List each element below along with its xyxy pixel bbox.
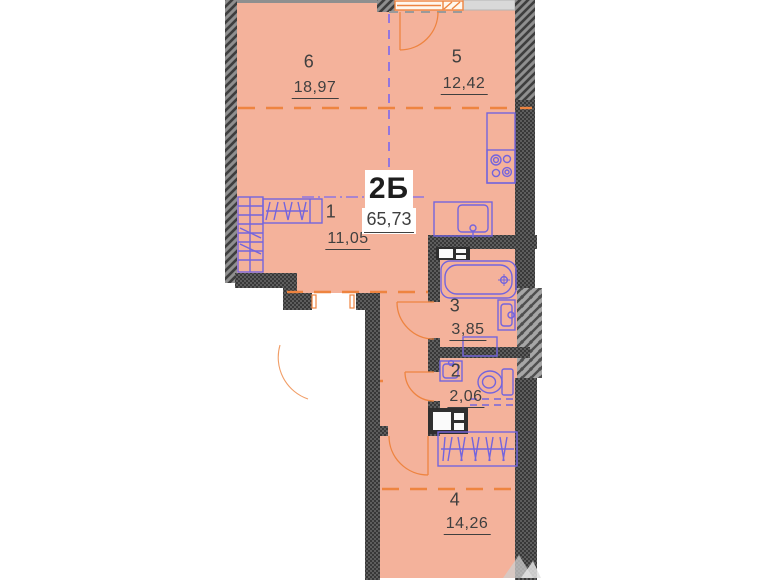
wall-stub-top xyxy=(377,0,395,12)
room-6-number: 6 xyxy=(304,52,315,73)
wall-corridor-seg2 xyxy=(428,338,440,372)
room-1-number: 1 xyxy=(326,202,337,223)
balcony-door-unit xyxy=(395,1,463,10)
room-2-area: 2,06 xyxy=(447,386,484,406)
room-6-area: 18,97 xyxy=(292,77,339,97)
wall-block-right-hatch xyxy=(517,288,542,378)
room-4-area: 14,26 xyxy=(444,513,491,533)
floorplan-canvas xyxy=(0,0,780,580)
room-5-area: 12,42 xyxy=(441,73,488,93)
room-2-number: 2 xyxy=(451,361,462,382)
apartment-total-area: 65,73 xyxy=(362,208,416,234)
window-slab-top xyxy=(463,0,515,10)
room-3-number: 3 xyxy=(450,296,461,317)
room-5-number: 5 xyxy=(452,47,463,68)
wall-step-horizontal xyxy=(235,273,297,288)
wall-right-hatch xyxy=(515,0,535,102)
room-3-area: 3,85 xyxy=(449,319,486,339)
door-arc-neighbor xyxy=(278,345,308,399)
wall-left-lower xyxy=(365,310,380,580)
ventilation-shaft-icon xyxy=(436,247,470,260)
wall-left-upper xyxy=(225,0,237,283)
floorplan: 6 18,97 5 12,42 1 11,05 3 3,85 2 2,06 4 … xyxy=(0,0,780,580)
window-top-room6 xyxy=(237,0,377,3)
apartment-type-label: 2Б xyxy=(365,170,413,208)
wall-door4-stub xyxy=(380,426,388,436)
room-4-number: 4 xyxy=(450,490,461,511)
entrance-door-jambs xyxy=(312,295,354,308)
wall-right-upper xyxy=(515,100,535,290)
wall-step-corner xyxy=(297,293,312,310)
wall-kitchen-bath xyxy=(428,235,537,249)
ventilation-shaft-icon xyxy=(428,408,468,434)
wall-right-lower xyxy=(515,378,537,580)
wall-entry-corner xyxy=(356,293,380,310)
